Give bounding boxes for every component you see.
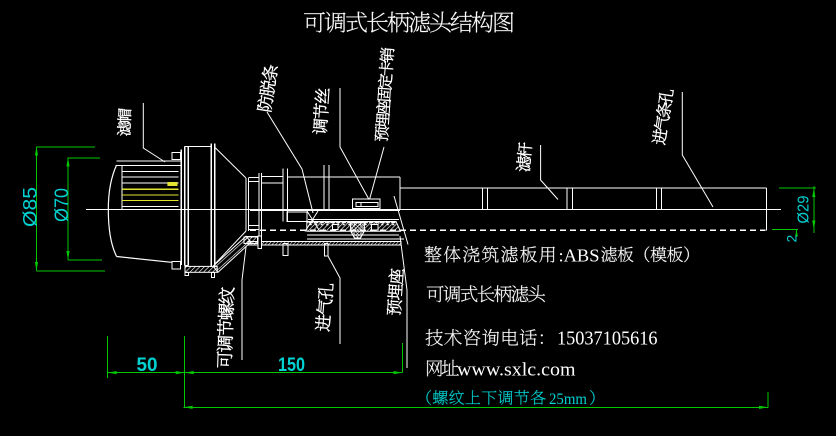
svg-text:50: 50 bbox=[137, 355, 158, 376]
svg-text:150: 150 bbox=[278, 355, 305, 376]
svg-text:www.sxlc.com: www.sxlc.com bbox=[457, 360, 576, 381]
svg-text:2: 2 bbox=[784, 235, 800, 243]
svg-text:Ø85: Ø85 bbox=[21, 187, 42, 227]
svg-text:25mm: 25mm bbox=[549, 391, 587, 408]
svg-text::ABS: :ABS bbox=[559, 246, 600, 266]
svg-text:Ø70: Ø70 bbox=[52, 188, 73, 222]
svg-text:15037105616: 15037105616 bbox=[557, 329, 658, 350]
svg-text:Ø29: Ø29 bbox=[796, 196, 813, 224]
